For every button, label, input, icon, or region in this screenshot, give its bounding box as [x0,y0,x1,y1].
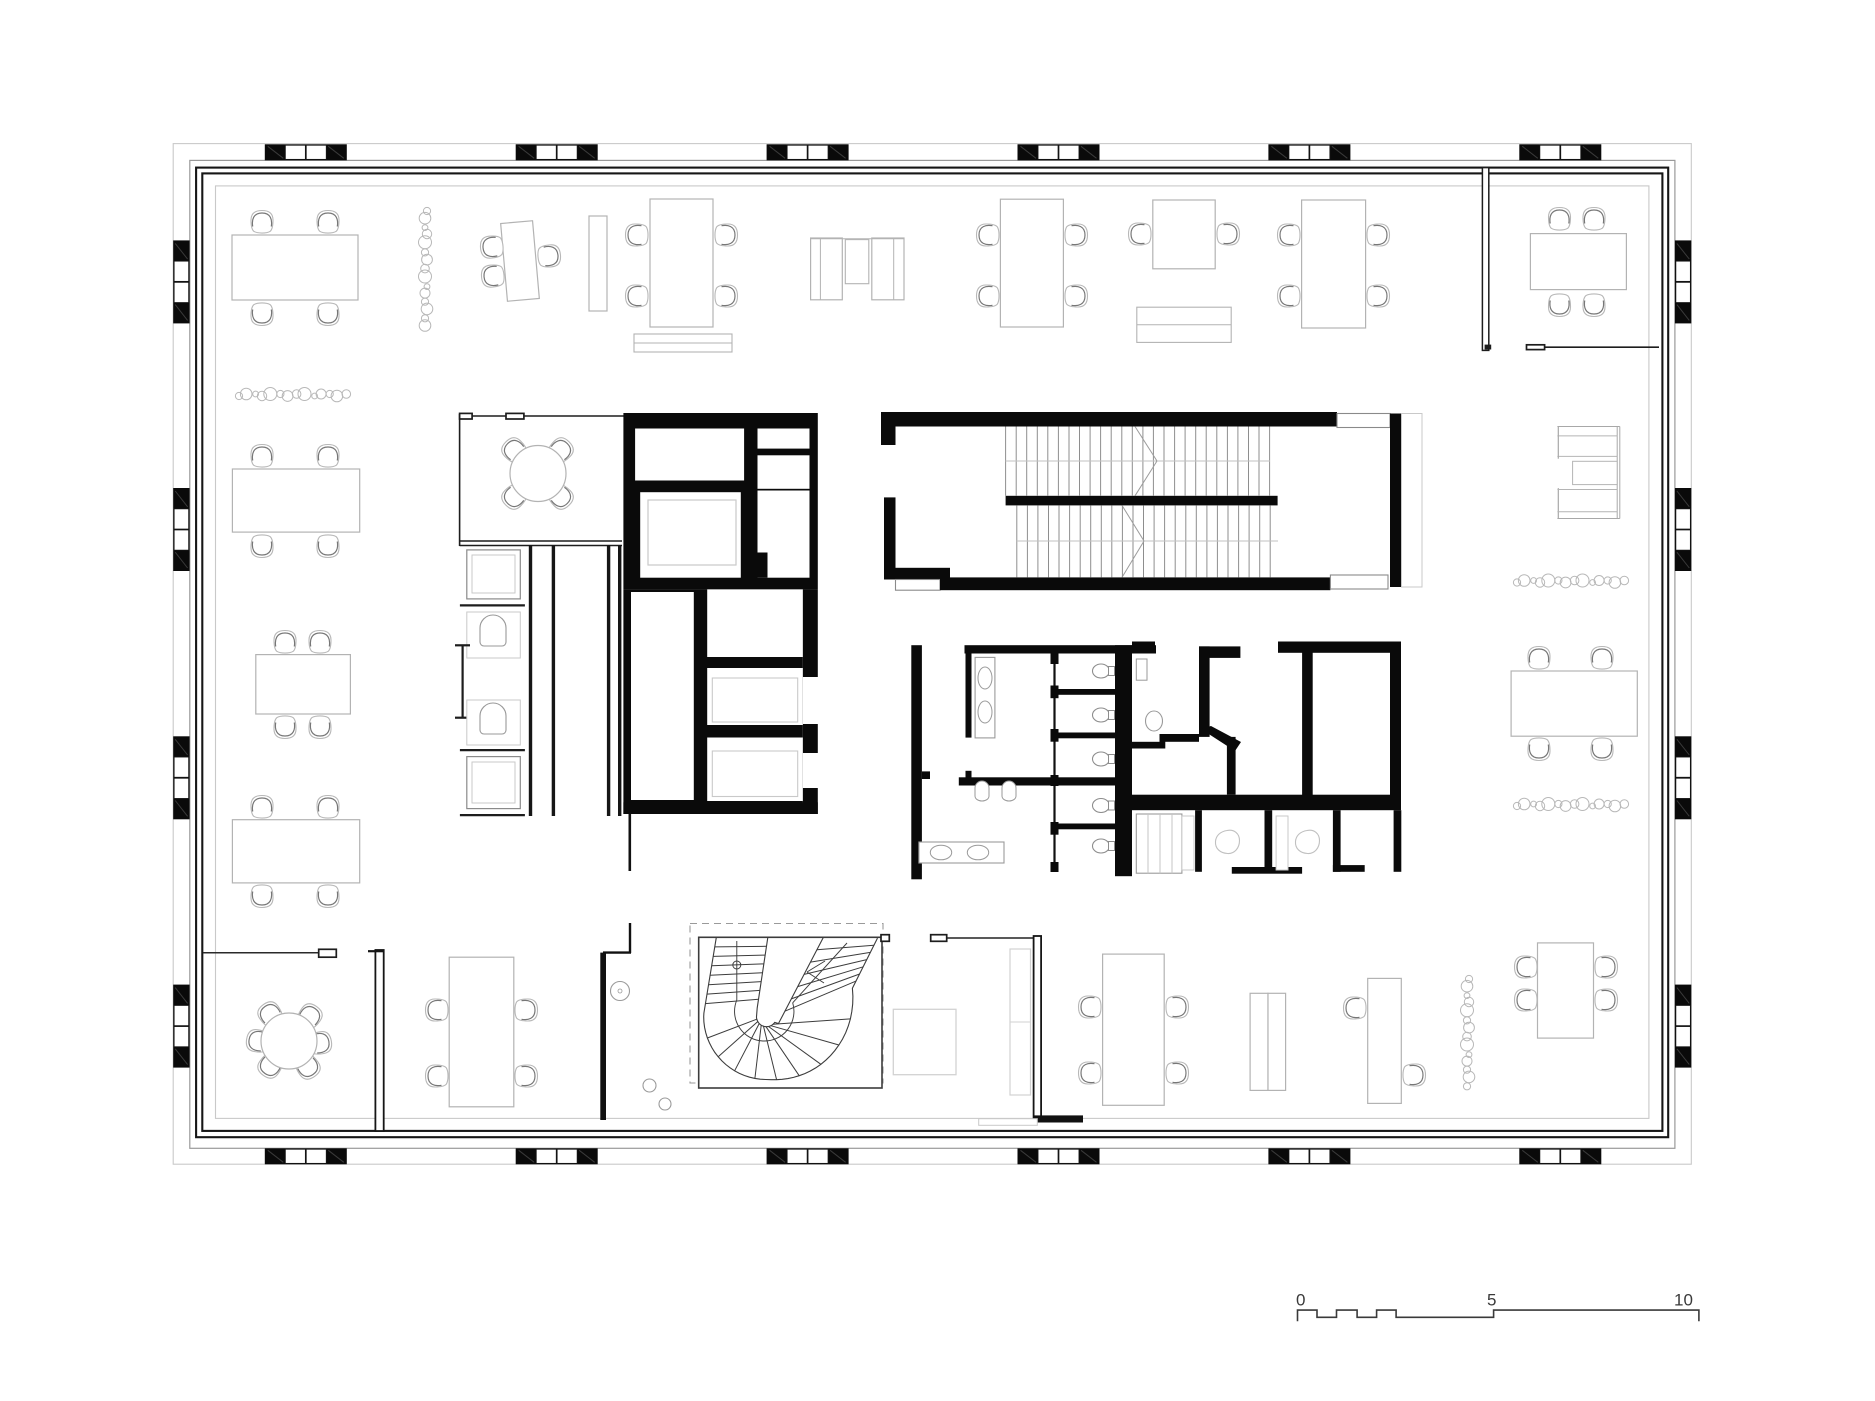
svg-text:5: 5 [1487,1291,1496,1310]
svg-text:0: 0 [1296,1291,1305,1310]
svg-text:10: 10 [1674,1291,1693,1310]
